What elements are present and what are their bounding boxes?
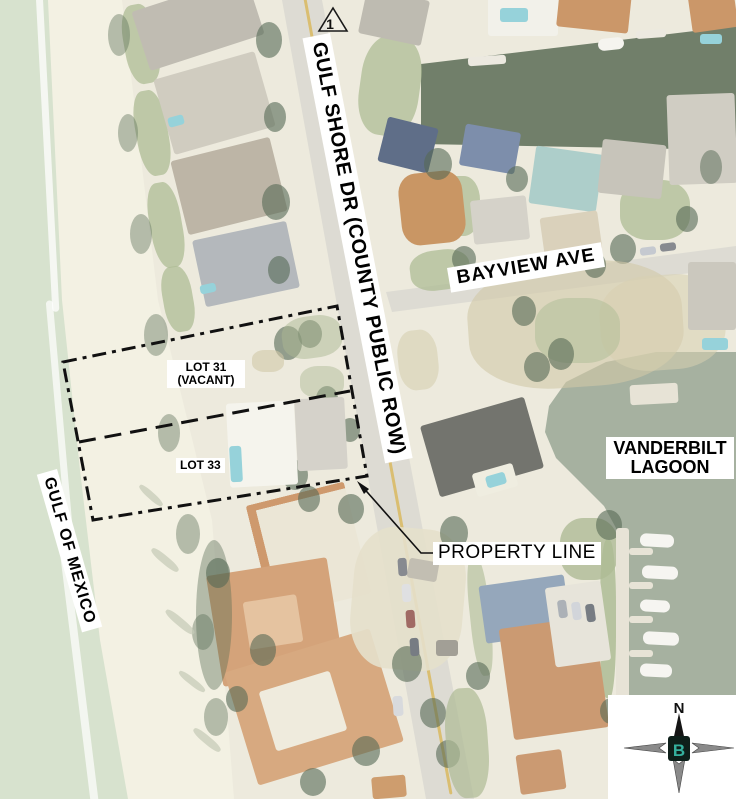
dock — [629, 616, 653, 623]
lot31-label-line1: LOT 31 — [169, 361, 243, 374]
parking-area — [545, 580, 612, 667]
car — [397, 558, 407, 577]
scrub-patch — [279, 312, 344, 362]
car — [409, 638, 419, 657]
tree-canopy — [256, 22, 282, 58]
lot31-label-line2: (VACANT) — [169, 374, 243, 387]
dune-vegetation — [204, 698, 228, 736]
tree-canopy — [338, 494, 364, 524]
north-arrow-box: N B — [608, 695, 736, 799]
tree-canopy — [262, 184, 290, 220]
dune-vegetation — [144, 314, 168, 356]
dune-vegetation — [130, 214, 152, 254]
vanderbilt-lagoon-label: VANDERBILT LAGOON — [606, 437, 734, 479]
tree-canopy — [424, 148, 452, 180]
dock — [616, 528, 629, 700]
dune-vegetation — [158, 414, 180, 452]
boat — [640, 663, 673, 678]
car — [660, 242, 677, 252]
leader-arrowhead — [357, 481, 369, 494]
property-line-label: PROPERTY LINE — [433, 542, 601, 565]
driveway — [294, 397, 348, 472]
tree-canopy — [548, 338, 574, 370]
pool — [702, 338, 728, 350]
house-roof — [470, 195, 530, 245]
scrub-patch — [252, 350, 284, 372]
house-roof — [396, 169, 467, 247]
tree-canopy — [226, 686, 248, 712]
tree-canopy — [300, 768, 326, 796]
pool — [229, 446, 243, 483]
lagoon-label-line2: LAGOON — [606, 458, 734, 477]
tree-canopy — [676, 206, 698, 232]
house-roof — [556, 0, 632, 34]
boat — [642, 565, 679, 580]
dock — [630, 383, 679, 405]
tree-canopy — [700, 150, 722, 184]
compass-west-arrow — [624, 743, 666, 753]
compass-south-arrow — [673, 759, 685, 793]
dock — [629, 650, 653, 657]
aerial-site-map: 1 GULF SHORE DR (COUNTY PUBLIC ROW) BAYV… — [0, 0, 736, 799]
dune-vegetation — [108, 14, 130, 56]
house-roof — [597, 139, 666, 199]
lagoon-label-line1: VANDERBILT — [606, 439, 734, 458]
car — [405, 610, 415, 629]
lot31-label: LOT 31 (VACANT) — [167, 360, 245, 388]
compass-center-letter: B — [673, 741, 685, 760]
boat — [640, 533, 675, 548]
tree-canopy — [250, 634, 276, 666]
tree-canopy — [512, 296, 536, 326]
house-roof — [528, 146, 603, 213]
car — [401, 584, 411, 603]
car — [640, 246, 657, 256]
tree-canopy — [610, 234, 636, 264]
scrub-patch — [395, 328, 441, 392]
dune-vegetation — [118, 114, 138, 152]
lot33-label: LOT 33 — [176, 458, 225, 473]
scrub-patch — [300, 366, 344, 398]
outbuilding — [436, 640, 458, 656]
beach-club-roof — [371, 775, 407, 799]
house-roof — [688, 262, 736, 330]
tree-canopy — [268, 256, 290, 284]
tree-canopy — [298, 486, 320, 512]
north-arrow: N B — [608, 695, 736, 799]
tree-canopy — [466, 662, 490, 690]
boat — [643, 631, 680, 646]
pool — [500, 8, 528, 22]
boat — [640, 599, 671, 613]
car — [392, 696, 403, 717]
pool — [700, 34, 722, 44]
house-roof — [358, 0, 430, 46]
dock — [629, 582, 653, 589]
house-roof — [515, 749, 566, 795]
tree-canopy — [524, 352, 550, 382]
dock — [629, 548, 653, 555]
compass-east-arrow — [692, 743, 734, 753]
tree-canopy — [352, 736, 380, 766]
tree-canopy — [420, 698, 446, 728]
tree-canopy — [264, 102, 286, 132]
dune-vegetation — [176, 514, 200, 554]
tree-canopy — [196, 540, 232, 690]
tree-canopy — [506, 166, 528, 192]
